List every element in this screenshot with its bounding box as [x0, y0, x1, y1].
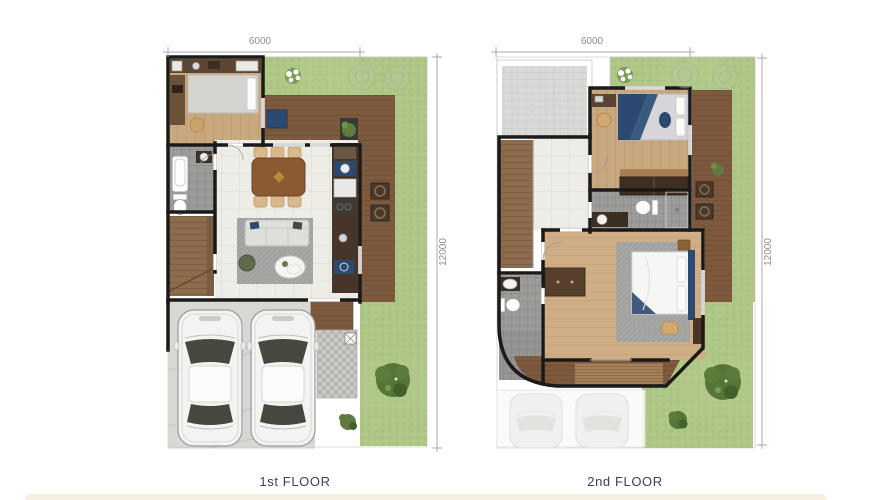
- flower-bush: [617, 67, 633, 83]
- deck-planter: [340, 118, 358, 142]
- dimension-width: [491, 47, 695, 57]
- car-2: [247, 310, 319, 446]
- dim-height-value: 12000: [438, 238, 449, 266]
- staircase: [168, 216, 214, 296]
- car-1: [174, 310, 246, 446]
- garden-bush: [339, 414, 357, 430]
- dim-width-value: 6000: [249, 36, 272, 47]
- ghost-garage: [497, 390, 645, 448]
- landing-floor: [533, 137, 590, 230]
- dim-width-value: 6000: [581, 36, 604, 47]
- staircase: [499, 140, 533, 268]
- roof: [497, 60, 592, 137]
- bottom-card-edge: [25, 494, 827, 500]
- first-floor-plan: 6000 12000: [150, 30, 450, 460]
- second-floor-plan: 6000 12000: [480, 30, 780, 460]
- first-floor-label: 1st FLOOR: [145, 474, 445, 489]
- dining-set: [252, 147, 305, 207]
- flower-bush: [285, 68, 301, 84]
- second-floor-label: 2nd FLOOR: [475, 474, 775, 489]
- sofa-area: [237, 218, 313, 284]
- deck-bench: [267, 110, 287, 128]
- dim-height-value: 12000: [763, 238, 774, 266]
- kitchen-counter: [332, 143, 358, 293]
- floorplan-canvas: 6000 12000: [0, 0, 889, 500]
